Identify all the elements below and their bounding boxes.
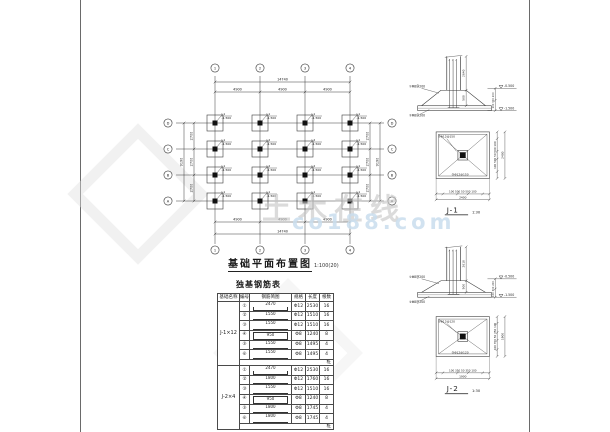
- footing-elev: -1.500: [312, 168, 322, 172]
- column-height-dim: 2640: [462, 69, 466, 77]
- foundation-name-cell: J-2×4: [218, 366, 240, 430]
- footing-type: J-1: [266, 190, 271, 194]
- plan-title: 基础平面布置图1:100(20): [228, 252, 339, 271]
- leader-line: [422, 279, 439, 284]
- table-note-cell: 桩: [240, 423, 334, 430]
- footing-elev: -1.500: [312, 142, 322, 146]
- footing-type: J-1: [356, 138, 361, 142]
- rebar-sketch-cell: 950: [250, 330, 292, 340]
- rebar-callout: ②Φ8@200: [409, 113, 425, 117]
- table-cell: 8: [320, 330, 334, 340]
- table-cell: 16: [320, 302, 334, 312]
- step-height-dim: 500: [462, 95, 466, 101]
- rebar-sketch-dim: 2470: [265, 302, 275, 307]
- rebar-sketch: 1800: [253, 415, 288, 423]
- plan-column-mark: [460, 152, 466, 158]
- plan-bottom-total: 1900: [459, 374, 467, 378]
- table-header-cell: 长度: [306, 294, 320, 302]
- dim-text: 2700: [189, 158, 193, 167]
- table-cell: 1510: [306, 311, 320, 321]
- foundation-name-cell: J-1×12: [218, 302, 240, 366]
- table-header-cell: 钢筋简图: [250, 294, 292, 302]
- table-cell: Φ8: [292, 394, 306, 404]
- section-dim-stack: 100 300 200: [491, 281, 495, 297]
- table-cell: ③: [240, 385, 250, 395]
- footing-type: J-2: [311, 138, 316, 142]
- section-dim-stack: 100 300 200: [491, 92, 495, 108]
- rebar-sketch-dim: 1550: [265, 341, 275, 346]
- rebar-sketch: 1550: [253, 342, 288, 350]
- footing-type: J-1: [266, 112, 271, 116]
- rebar-callout: ①Φ8@200: [409, 84, 425, 88]
- footing-elev: -1.500: [222, 142, 232, 146]
- elevation-symbol: [499, 276, 503, 279]
- plan-rebar-callout: ②Φ12@120: [452, 350, 469, 354]
- footing-type: J-1: [221, 138, 226, 142]
- detail-j2-drawing: 2610500①Φ8@200②Φ8@200-0.500-1.500100 300…: [408, 238, 534, 403]
- plan-bottom-dims: 100 350 50 350 100: [449, 368, 477, 372]
- footing-type: J-2: [266, 138, 271, 142]
- detail-scale: 1:30: [472, 389, 481, 393]
- step-height-dim: 500: [462, 284, 466, 290]
- table-cell: ⑤: [240, 340, 250, 350]
- rebar-table-title: 独基钢筋表: [236, 279, 281, 290]
- leader-line: [422, 88, 439, 93]
- table-cell: 16: [320, 385, 334, 395]
- rebar-sketch-dim: 950: [267, 397, 275, 402]
- rebar-sketch-cell: 950: [250, 394, 292, 404]
- rebar-sketch-cell: 1800: [250, 404, 292, 414]
- footing-profile: [422, 281, 486, 293]
- rebar-sketch-dim: 1550: [265, 321, 275, 326]
- rebar-table-grid: 基础名称编号钢筋简图规格长度根数J-1×12①2470Φ12253016②155…: [217, 293, 334, 430]
- footing-elev: -1.500: [312, 194, 322, 198]
- footing-elev: -1.500: [222, 168, 232, 172]
- table-cell: ③: [240, 321, 250, 331]
- table-cell: 16: [320, 375, 334, 385]
- column-break-line: [445, 55, 462, 57]
- dim-text: 2700: [365, 184, 369, 193]
- dim-text: 2700: [365, 132, 369, 141]
- detail-j1-drawing: 2640500①Φ8@200②Φ8@200-0.500-1.500100 300…: [408, 26, 534, 232]
- rebar-sketch-dim: 950: [267, 333, 275, 338]
- dim-text: 4900: [323, 88, 332, 92]
- dim-text: 2700: [365, 158, 369, 167]
- footing-elev: -1.500: [357, 194, 367, 198]
- elevation-value: -1.500: [504, 106, 514, 110]
- dim-text: 2700: [189, 184, 193, 193]
- plan-bottom-total: 2400: [459, 195, 467, 199]
- table-cell: Φ8: [292, 414, 306, 424]
- row-axis-label: D: [391, 121, 394, 125]
- rebar-sketch: 1550: [253, 322, 288, 330]
- footing-leader: [307, 142, 312, 148]
- rebar-table: 基础名称编号钢筋简图规格长度根数J-1×12①2470Φ12253016②155…: [217, 293, 334, 430]
- table-cell: ②: [240, 311, 250, 321]
- leader-line: [447, 323, 457, 332]
- column-height-dim: 2610: [462, 260, 466, 268]
- dim-text: 2700: [189, 132, 193, 141]
- row-axis-label: D: [167, 121, 170, 125]
- plan-title-scale: 1:100(20): [314, 263, 339, 269]
- rebar-sketch: 950: [253, 396, 288, 404]
- plan-rebar-callout: ①Φ12@150: [438, 135, 455, 139]
- table-cell: Φ8: [292, 350, 306, 360]
- table-cell: 2530: [306, 366, 320, 376]
- elevation-value: -0.500: [504, 275, 514, 279]
- footing-elev: -1.500: [222, 194, 232, 198]
- dim-text: 4900: [233, 88, 242, 92]
- sheet-border-left: [80, 0, 81, 432]
- dim-total: 9190: [179, 158, 183, 167]
- footing-leader: [262, 168, 267, 174]
- plan-rebar-callout: ②Φ12@150: [452, 173, 469, 177]
- table-cell: Φ12: [292, 302, 306, 312]
- table-cell: Φ12: [292, 375, 306, 385]
- footing-type: J-1: [356, 190, 361, 194]
- table-cell: ④: [240, 394, 250, 404]
- footing-type: J-1: [221, 112, 226, 116]
- footing-leader: [262, 194, 267, 200]
- plan-bottom-dims: 100 500 50 500 100: [449, 189, 477, 193]
- table-cell: 4: [320, 414, 334, 424]
- rebar-sketch-cell: 1550: [250, 340, 292, 350]
- table-cell: 1745: [306, 414, 320, 424]
- footing-elev: -1.500: [267, 142, 277, 146]
- table-cell: ①: [240, 302, 250, 312]
- footing-leader: [262, 116, 267, 122]
- rebar-sketch-cell: 2470: [250, 302, 292, 312]
- dim-total: 14740: [277, 230, 288, 234]
- rebar-sketch: 1550: [253, 313, 288, 321]
- rebar-sketch-dim: 1800: [265, 405, 275, 410]
- leader-line: [447, 139, 457, 152]
- table-cell: ⑥: [240, 350, 250, 360]
- table-cell: 1510: [306, 321, 320, 331]
- detail-id: J-1: [446, 205, 459, 214]
- rebar-sketch-dim: 1800: [265, 376, 275, 381]
- footing-elev: -1.500: [222, 116, 232, 120]
- drawing-sheet: 土木在线 co188.com 11223344DDCCBBAA147404900…: [0, 0, 610, 432]
- table-cell: 16: [320, 366, 334, 376]
- table-cell: Φ8: [292, 404, 306, 414]
- footing-type: J-2: [311, 164, 316, 168]
- table-cell: Φ12: [292, 385, 306, 395]
- elevation-value: -0.500: [504, 84, 514, 88]
- table-cell: 4: [320, 404, 334, 414]
- elevation-value: -1.500: [504, 293, 514, 297]
- footing-leader: [307, 168, 312, 174]
- table-cell: 1240: [306, 330, 320, 340]
- elevation-symbol: [499, 108, 503, 111]
- footing-elev: -1.500: [267, 194, 277, 198]
- footing-profile: [422, 90, 486, 106]
- plan-rebar-callout: ①Φ12@120: [438, 319, 455, 323]
- table-cell: 2530: [306, 302, 320, 312]
- rebar-sketch-cell: 1550: [250, 385, 292, 395]
- plan-right-dims: 100 350 50 350 100: [493, 322, 497, 350]
- table-cell: 1495: [306, 350, 320, 360]
- plan-column-mark: [460, 334, 466, 340]
- table-cell: ⑥: [240, 414, 250, 424]
- elevation-symbol: [499, 294, 503, 297]
- table-cell: ①: [240, 366, 250, 376]
- dim-text: 4900: [323, 218, 332, 222]
- table-cell: Φ12: [292, 366, 306, 376]
- detail-scale: 1:30: [472, 210, 481, 214]
- footing-elev: -1.500: [267, 168, 277, 172]
- table-header-cell: 根数: [320, 294, 334, 302]
- rebar-sketch-cell: 1550: [250, 311, 292, 321]
- rebar-sketch: 2470: [253, 303, 288, 311]
- dim-total: 9190: [375, 158, 379, 167]
- footing-elev: -1.500: [357, 142, 367, 146]
- footing-type: J-1: [311, 112, 316, 116]
- footing-leader: [352, 116, 357, 122]
- footing-elev: -1.500: [312, 116, 322, 120]
- table-cell: 4: [320, 350, 334, 360]
- footing-leader: [262, 142, 267, 148]
- rebar-sketch: 2470: [253, 367, 288, 375]
- rebar-sketch: 950: [253, 332, 288, 340]
- table-cell: 1495: [306, 340, 320, 350]
- footing-leader: [307, 194, 312, 200]
- rebar-sketch: 1800: [253, 377, 288, 385]
- col-axis-label: 1: [214, 66, 216, 70]
- table-cell: Φ8: [292, 340, 306, 350]
- foundation-plan-drawing: 11223344DDCCBBAA147404900490049004900490…: [158, 56, 416, 266]
- column-break-line: [445, 246, 462, 248]
- elevation-symbol: [499, 85, 503, 88]
- dim-text: 4900: [278, 88, 287, 92]
- footing-leader: [217, 116, 222, 122]
- rebar-sketch: 1550: [253, 351, 288, 359]
- table-cell: 1760: [306, 375, 320, 385]
- footing-leader: [352, 194, 357, 200]
- plan-right-dims: 100 500 50 500 100: [493, 141, 497, 169]
- detail-id: J-2: [446, 384, 459, 393]
- rebar-sketch-cell: 1800: [250, 414, 292, 424]
- rebar-callout: ①Φ8@200: [409, 275, 425, 279]
- table-cell: 1510: [306, 385, 320, 395]
- footing-type: J-2: [266, 164, 271, 168]
- footing-leader: [352, 168, 357, 174]
- table-cell: Φ12: [292, 321, 306, 331]
- footing-leader: [217, 142, 222, 148]
- footing-type: J-1: [356, 112, 361, 116]
- table-cell: 16: [320, 321, 334, 331]
- dim-text: 4900: [233, 218, 242, 222]
- footing-leader: [307, 116, 312, 122]
- rebar-sketch-dim: 1550: [265, 385, 275, 390]
- table-row: J-2×4①2470Φ12253016: [218, 366, 334, 376]
- rebar-sketch-dim: 2470: [265, 366, 275, 371]
- table-cell: ⑤: [240, 404, 250, 414]
- table-header-cell: 编号: [240, 294, 250, 302]
- rebar-sketch-dim: 1550: [265, 312, 275, 317]
- dim-text: 4900: [278, 218, 287, 222]
- plan-right-total: 1900: [501, 333, 505, 341]
- table-cell: 4: [320, 340, 334, 350]
- footing-elev: -1.500: [357, 168, 367, 172]
- rebar-sketch-dim: 1800: [265, 414, 275, 419]
- table-cell: Φ8: [292, 330, 306, 340]
- dim-total: 14740: [277, 78, 288, 82]
- table-cell: 1240: [306, 394, 320, 404]
- footing-leader: [352, 142, 357, 148]
- table-cell: ②: [240, 375, 250, 385]
- col-axis-label: 2: [259, 66, 261, 70]
- footing-type: J-1: [311, 190, 316, 194]
- footing-leader: [217, 194, 222, 200]
- rebar-sketch-cell: 1550: [250, 321, 292, 331]
- footing-type: J-1: [221, 164, 226, 168]
- col-axis-label: 1: [214, 248, 216, 252]
- table-header-cell: 规格: [292, 294, 306, 302]
- table-cell: 1745: [306, 404, 320, 414]
- table-row: J-1×12①2470Φ12253016: [218, 302, 334, 312]
- plan-title-text: 基础平面布置图: [228, 259, 312, 272]
- rebar-callout: ②Φ8@200: [409, 300, 425, 304]
- rebar-sketch: 1550: [253, 386, 288, 394]
- rebar-sketch: 1800: [253, 406, 288, 414]
- table-cell: ④: [240, 330, 250, 340]
- table-cell: 16: [320, 311, 334, 321]
- rebar-sketch-dim: 1550: [265, 350, 275, 355]
- table-cell: 8: [320, 394, 334, 404]
- rebar-sketch-cell: 1550: [250, 350, 292, 360]
- plan-right-total: 2400: [501, 151, 505, 159]
- table-cell: Φ12: [292, 311, 306, 321]
- footing-type: J-1: [221, 190, 226, 194]
- rebar-sketch-cell: 2470: [250, 366, 292, 376]
- col-axis-label: 3: [304, 66, 306, 70]
- footing-leader: [217, 168, 222, 174]
- footing-type: J-1: [356, 164, 361, 168]
- table-header-cell: 基础名称: [218, 294, 240, 302]
- footing-elev: -1.500: [357, 116, 367, 120]
- rebar-sketch-cell: 1800: [250, 375, 292, 385]
- footing-elev: -1.500: [267, 116, 277, 120]
